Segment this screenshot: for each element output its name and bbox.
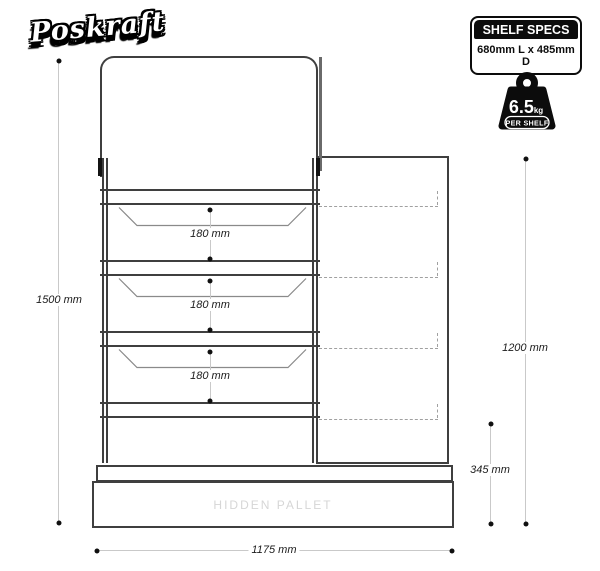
dim-dot: [488, 522, 493, 527]
dim-line-total-height: [58, 61, 59, 523]
shelf-specs-box: SHELF SPECS 680mm L x 485mm D: [470, 16, 582, 75]
shelf-beam: [100, 189, 320, 205]
dim-dot: [450, 548, 455, 553]
hidden-shelf-edge: [437, 404, 438, 418]
shelf-tray: [119, 279, 306, 297]
per-shelf-label: PER SHELF: [505, 119, 548, 128]
dim-label-base-height: 345 mm: [467, 464, 513, 476]
shelf-beam: [100, 331, 320, 347]
shelf-spec-sheet: Poskraft SHELF SPECS 680mm L x 485mm D 6…: [0, 0, 600, 571]
hidden-pallet-label: HIDDEN PALLET: [213, 498, 332, 512]
hidden-pallet: HIDDEN PALLET: [92, 481, 454, 528]
weight-icon: 6.5kg PER SHELF: [495, 68, 561, 134]
dim-dot: [56, 59, 61, 64]
hidden-shelf-edge: [437, 191, 438, 205]
hidden-shelf-edge: [437, 333, 438, 347]
dim-dot: [208, 256, 213, 261]
sign-bracket-right: [316, 158, 320, 176]
shelf-tray: [119, 208, 306, 226]
hidden-shelf-line: [319, 277, 438, 278]
dim-dot: [95, 548, 100, 553]
dim-dot: [208, 349, 213, 354]
shelf-beam: [100, 260, 320, 276]
shelf-specs-dimensions: 680mm L x 485mm D: [474, 39, 578, 71]
dim-label-shelf-gap-1: 180 mm: [187, 228, 233, 240]
shelf-tray: [119, 350, 306, 368]
hidden-shelf-line: [319, 206, 438, 207]
dim-label-total-height: 1500 mm: [33, 294, 85, 306]
dim-dot: [523, 522, 528, 527]
sign-support-pole: [319, 57, 322, 171]
dim-dot: [208, 398, 213, 403]
dim-dot: [208, 207, 213, 212]
dim-label-shelf-gap-2: 180 mm: [187, 299, 233, 311]
shelf-specs-title: SHELF SPECS: [474, 20, 578, 39]
dim-dot: [523, 157, 528, 162]
hidden-shelf-edge: [437, 262, 438, 276]
header-sign-board: [100, 56, 318, 177]
dim-label-width: 1175 mm: [248, 544, 299, 556]
side-panel: [316, 156, 449, 464]
hidden-shelf-line: [319, 419, 438, 420]
dim-dot: [488, 421, 493, 426]
sign-bracket-left: [98, 158, 102, 176]
dim-label-shelf-gap-3: 180 mm: [187, 370, 233, 382]
dim-dot: [208, 327, 213, 332]
dim-dot: [56, 521, 61, 526]
shelf-beam: [100, 402, 320, 418]
dim-dot: [208, 278, 213, 283]
dim-label-shelving-height: 1200 mm: [499, 342, 551, 354]
base-platform: [96, 465, 453, 482]
brand-logo: Poskraft: [29, 6, 166, 49]
hidden-shelf-line: [319, 348, 438, 349]
